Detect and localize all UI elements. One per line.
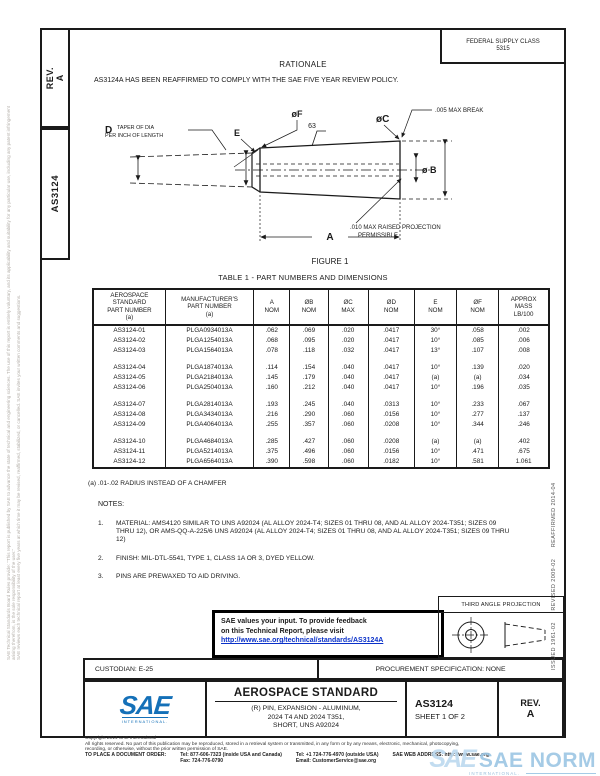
table-cell: .068 — [254, 336, 290, 346]
document-type-title: AEROSPACE STANDARD — [215, 687, 397, 702]
order-phone-fax: Tel: 877-606-7323 (inside USA and Canada… — [180, 752, 282, 765]
finish-value: 63 — [308, 123, 316, 130]
title-block: SAE INTERNATIONAL. AEROSPACE STANDARD (R… — [83, 680, 564, 738]
table-cell: .471 — [457, 447, 499, 457]
table-row: AS3124-01PLGA0934013A.062.069.020.041730… — [93, 325, 549, 336]
table-cell: .598 — [290, 457, 328, 468]
table-cell: .002 — [499, 325, 549, 336]
table-cell: .040 — [328, 363, 368, 373]
table-cell: AS3124-09 — [93, 420, 165, 430]
figure-1-drawing: ø B øC .005 MAX BREAK 63 øF E D TAPER OF… — [100, 100, 540, 270]
table-cell: .008 — [499, 346, 549, 356]
table-row: AS3124-08PLGA3434013A.216.290.060.015610… — [93, 410, 549, 420]
rationale-heading: RATIONALE — [42, 60, 564, 69]
table-cell: PLGA2184013A — [165, 373, 253, 383]
table-title: TABLE 1 - PART NUMBERS AND DIMENSIONS — [42, 273, 564, 282]
order-fax: Fax: 724-776-0790 — [180, 758, 282, 764]
table-cell: .095 — [290, 336, 328, 346]
table-cell: 10° — [414, 410, 456, 420]
figure-caption: FIGURE 1 — [312, 257, 349, 266]
dim-d-note-1: TAPER OF DIA — [117, 125, 154, 131]
table-cell: .137 — [499, 410, 549, 420]
table-cell: (a) — [457, 437, 499, 447]
table-cell: .085 — [457, 336, 499, 346]
table-cell: PLGA1874013A — [165, 363, 253, 373]
table-cell: .040 — [328, 383, 368, 393]
table-cell: .390 — [254, 457, 290, 468]
table-cell: .114 — [254, 363, 290, 373]
table-cell: (a) — [414, 373, 456, 383]
table-cell: .107 — [457, 346, 499, 356]
table-cell: .496 — [290, 447, 328, 457]
watermark-sae-logo: SAE — [429, 745, 474, 774]
table-cell: AS3124-07 — [93, 400, 165, 410]
table-cell: .020 — [499, 363, 549, 373]
table-cell: .0417 — [368, 383, 414, 393]
document-number-cell: AS3124 SHEET 1 OF 2 — [407, 682, 499, 736]
note-text: PINS ARE PREWAXED TO AID DRIVING. — [116, 573, 240, 581]
table-cell: 30° — [414, 325, 456, 336]
table-row: AS3124-10PLGA4684013A.285.427.060.0208(a… — [93, 437, 549, 447]
break-note: .005 MAX BREAK — [435, 108, 483, 114]
sae-logo-cell: SAE INTERNATIONAL. — [85, 682, 207, 736]
note-number: 2. — [98, 555, 116, 563]
drawing-frame: FEDERAL SUPPLY CLASS 5315 RATIONALE AS31… — [40, 28, 566, 738]
table-cell: .357 — [290, 420, 328, 430]
table-cell: AS3124-11 — [93, 447, 165, 457]
table-cell: .212 — [290, 383, 328, 393]
standard-sheet: SAE Technical Standards Board Rules prov… — [0, 0, 600, 776]
table-row: AS3124-05PLGA2184013A.145.179.040.0417(a… — [93, 373, 549, 383]
table-cell: .0417 — [368, 373, 414, 383]
table-footnote: (a) .01-.02 RADIUS INSTEAD OF A CHAMFER — [88, 480, 227, 487]
table-row: AS3124-06PLGA2504013A.160.212.040.041710… — [93, 383, 549, 393]
table-cell: 1.061 — [499, 457, 549, 468]
table-cell: .069 — [290, 325, 328, 336]
table-cell: .040 — [328, 373, 368, 383]
table-cell: .006 — [499, 336, 549, 346]
dim-d-note-2: PER INCH OF LENGTH — [105, 133, 163, 139]
sheet-indicator: SHEET 1 OF 2 — [415, 712, 465, 721]
table-cell: 10° — [414, 383, 456, 393]
table-row: AS3124-03PLGA1564013A.078.118.032.041713… — [93, 346, 549, 356]
column-header: ENOM — [414, 289, 456, 325]
table-header-row: AEROSPACESTANDARDPART NUMBER(a)MANUFACTU… — [93, 289, 549, 325]
table-cell: 10° — [414, 447, 456, 457]
table-cell: .032 — [328, 346, 368, 356]
note-number: 3. — [98, 573, 116, 581]
table-cell: AS3124-02 — [93, 336, 165, 346]
supply-class-number: 5315 — [496, 46, 509, 54]
dim-a-label: A — [326, 232, 333, 243]
dim-e-label: E — [234, 128, 240, 138]
table-row: AS3124-04PLGA1874013A.114.154.040.041710… — [93, 363, 549, 373]
document-number-sidebar-box: AS3124 — [40, 128, 70, 260]
projection-note-2: PERMISSIBLE — [358, 233, 398, 239]
document-number: AS3124 — [415, 698, 453, 710]
table-cell: .290 — [290, 410, 328, 420]
third-angle-projection-box: THIRD ANGLE PROJECTION — [438, 596, 564, 658]
column-header: ØDNOM — [368, 289, 414, 325]
table-cell: AS3124-12 — [93, 457, 165, 468]
table-cell: .245 — [290, 400, 328, 410]
table-row: AS3124-09PLGA4064013A.255.357.060.020810… — [93, 420, 549, 430]
dim-f-label: øF — [292, 109, 303, 119]
table-row: AS3124-02PLGA1254013A.068.095.020.041710… — [93, 336, 549, 346]
table-cell: .675 — [499, 447, 549, 457]
table-cell: .067 — [499, 400, 549, 410]
table-row: AS3124-07PLGA2814013A.193.245.040.031310… — [93, 400, 549, 410]
table-cell: AS3124-10 — [93, 437, 165, 447]
table-cell: .145 — [254, 373, 290, 383]
table-cell: 10° — [414, 457, 456, 468]
table-cell: PLGA4684013A — [165, 437, 253, 447]
column-header: AEROSPACESTANDARDPART NUMBER(a) — [93, 289, 165, 325]
table-cell: PLGA0934013A — [165, 325, 253, 336]
table-cell: .154 — [290, 363, 328, 373]
table-cell: .062 — [254, 325, 290, 336]
dim-c-label: øC — [376, 114, 389, 125]
table-cell: .179 — [290, 373, 328, 383]
column-header: ØFNOM — [457, 289, 499, 325]
order-email: Email: CustomerService@sae.org — [296, 758, 379, 764]
column-header: APPROXMASSLB/100 — [499, 289, 549, 325]
table-cell: .139 — [457, 363, 499, 373]
document-title-cell: AEROSPACE STANDARD (R) PIN, EXPANSION - … — [207, 682, 407, 736]
table-cell: .581 — [457, 457, 499, 468]
rev-sidebar-box: REV. A — [40, 28, 70, 128]
feedback-link[interactable]: http://www.sae.org/technical/standards/A… — [221, 637, 383, 644]
table-cell: PLGA5214013A — [165, 447, 253, 457]
third-angle-projection-label: THIRD ANGLE PROJECTION — [439, 597, 563, 613]
column-header: ØBNOM — [290, 289, 328, 325]
table-cell: PLGA4064013A — [165, 420, 253, 430]
table-cell: AS3124-01 — [93, 325, 165, 336]
table-cell: PLGA6564013A — [165, 457, 253, 468]
table-cell: .060 — [328, 437, 368, 447]
order-phone-email: Tel: +1 724-776-4970 (outside USA) Email… — [296, 752, 379, 765]
table-cell: .035 — [499, 383, 549, 393]
table-cell: .118 — [290, 346, 328, 356]
table-cell: .0182 — [368, 457, 414, 468]
column-header: ØCMAX — [328, 289, 368, 325]
custodian-cell: CUSTODIAN: E-25 — [83, 658, 319, 680]
table-cell: PLGA1254013A — [165, 336, 253, 346]
table-cell: (a) — [457, 373, 499, 383]
table-cell: .0417 — [368, 336, 414, 346]
table-cell: .078 — [254, 346, 290, 356]
table-cell: .233 — [457, 400, 499, 410]
table-cell: .402 — [499, 437, 549, 447]
table-cell: .277 — [457, 410, 499, 420]
table-group-spacer — [93, 393, 549, 400]
note-item: 1.MATERIAL: AMS4120 SIMILAR TO UNS A9202… — [98, 520, 510, 545]
notes-heading: NOTES: — [98, 501, 124, 508]
table-group-spacer — [93, 430, 549, 437]
rev-sidebar-label: REV. A — [45, 67, 65, 89]
revision-label: REV. — [520, 698, 540, 708]
federal-supply-class-box: FEDERAL SUPPLY CLASS 5315 — [440, 30, 564, 64]
note-text: MATERIAL: AMS4120 SIMILAR TO UNS A92024 … — [116, 520, 510, 545]
document-subtitle-3: SHORT, UNS A92024 — [273, 722, 339, 731]
watermark-subtitle: INTERNATIONAL. — [469, 771, 520, 776]
left-margin-text-2: SAE reviews each technical report at lea… — [16, 95, 21, 660]
table-cell: .216 — [254, 410, 290, 420]
table-cell: AS3124-03 — [93, 346, 165, 356]
table-cell: PLGA1564013A — [165, 346, 253, 356]
table-cell: 10° — [414, 336, 456, 346]
watermark-title: SAE NORM — [479, 749, 596, 773]
table-cell: .427 — [290, 437, 328, 447]
note-text: FINISH: MIL-DTL-5541, TYPE 1, CLASS 1A O… — [116, 555, 315, 563]
table-cell: .0417 — [368, 346, 414, 356]
note-item: 2.FINISH: MIL-DTL-5541, TYPE 1, CLASS 1A… — [98, 555, 510, 563]
table-cell: .0208 — [368, 437, 414, 447]
table-cell: .020 — [328, 336, 368, 346]
order-label: TO PLACE A DOCUMENT ORDER: — [85, 752, 166, 765]
table-cell: .0208 — [368, 420, 414, 430]
feedback-line-2: on this Technical Report, please visit — [221, 627, 435, 637]
table-cell: .060 — [328, 420, 368, 430]
note-number: 1. — [98, 520, 116, 545]
table-cell: .020 — [328, 325, 368, 336]
table-cell: .0417 — [368, 325, 414, 336]
table-row: AS3124-12PLGA6564013A.390.598.060.018210… — [93, 457, 549, 468]
document-number-sidebar-label: AS3124 — [50, 175, 61, 212]
table-cell: .285 — [254, 437, 290, 447]
table-cell: .375 — [254, 447, 290, 457]
watermark-rule — [526, 773, 596, 774]
table-cell: AS3124-05 — [93, 373, 165, 383]
feedback-box: SAE values your input. To provide feedba… — [212, 610, 444, 658]
table-cell: .160 — [254, 383, 290, 393]
issue-history-text: ISSUED 1961-02 REVISED 2009-02 REAFFIRME… — [551, 385, 557, 670]
table-cell: AS3124-06 — [93, 383, 165, 393]
third-angle-projection-icon — [439, 613, 562, 657]
table-cell: .0156 — [368, 410, 414, 420]
table-cell: .196 — [457, 383, 499, 393]
procurement-spec-cell: PROCUREMENT SPECIFICATION: NONE — [317, 658, 564, 680]
dim-b-label: ø B — [422, 165, 437, 175]
table-cell: (a) — [414, 437, 456, 447]
column-header: ANOM — [254, 289, 290, 325]
note-item: 3.PINS ARE PREWAXED TO AID DRIVING. — [98, 573, 510, 581]
table-cell: .0417 — [368, 363, 414, 373]
table-cell: .344 — [457, 420, 499, 430]
table-cell: 10° — [414, 420, 456, 430]
table-cell: .034 — [499, 373, 549, 383]
table-cell: AS3124-08 — [93, 410, 165, 420]
revision-cell: REV. A — [499, 682, 562, 736]
projection-note-1: .010 MAX RAISED PROJECTION — [350, 225, 441, 231]
table-cell: .060 — [328, 457, 368, 468]
column-header: MANUFACTURER'SPART NUMBER(a) — [165, 289, 253, 325]
table-cell: 13° — [414, 346, 456, 356]
rationale-text: AS3124A HAS BEEN REAFFIRMED TO COMPLY WI… — [94, 77, 524, 84]
table-group-spacer — [93, 356, 549, 363]
document-subtitle-1: (R) PIN, EXPANSION - ALUMINUM, — [251, 705, 360, 714]
table-cell: PLGA2814013A — [165, 400, 253, 410]
sae-norm-watermark: SAE SAE NORM INTERNATIONAL. — [429, 745, 596, 776]
table-cell: .058 — [457, 325, 499, 336]
supply-class-label: FEDERAL SUPPLY CLASS — [466, 39, 540, 47]
table-cell: .193 — [254, 400, 290, 410]
table-cell: .255 — [254, 420, 290, 430]
table-cell: .0156 — [368, 447, 414, 457]
dimensions-table: AEROSPACESTANDARDPART NUMBER(a)MANUFACTU… — [92, 288, 550, 469]
notes-list: 1.MATERIAL: AMS4120 SIMILAR TO UNS A9202… — [98, 520, 510, 591]
table-cell: AS3124-04 — [93, 363, 165, 373]
sae-logo: SAE — [119, 694, 172, 716]
table-cell: .060 — [328, 410, 368, 420]
table-cell: PLGA2504013A — [165, 383, 253, 393]
left-margin-text-1: SAE Technical Standards Board Rules prov… — [6, 95, 16, 660]
table-cell: .0313 — [368, 400, 414, 410]
feedback-line-1: SAE values your input. To provide feedba… — [221, 617, 435, 627]
table-cell: .246 — [499, 420, 549, 430]
table-cell: .040 — [328, 400, 368, 410]
table-cell: .060 — [328, 447, 368, 457]
revision-value: A — [527, 708, 535, 720]
table-row: AS3124-11PLGA5214013A.375.496.060.015610… — [93, 447, 549, 457]
document-subtitle-2: 2024 T4 AND 2024 T351, — [268, 714, 345, 723]
table-cell: 10° — [414, 400, 456, 410]
table-cell: 10° — [414, 363, 456, 373]
table-cell: PLGA3434013A — [165, 410, 253, 420]
